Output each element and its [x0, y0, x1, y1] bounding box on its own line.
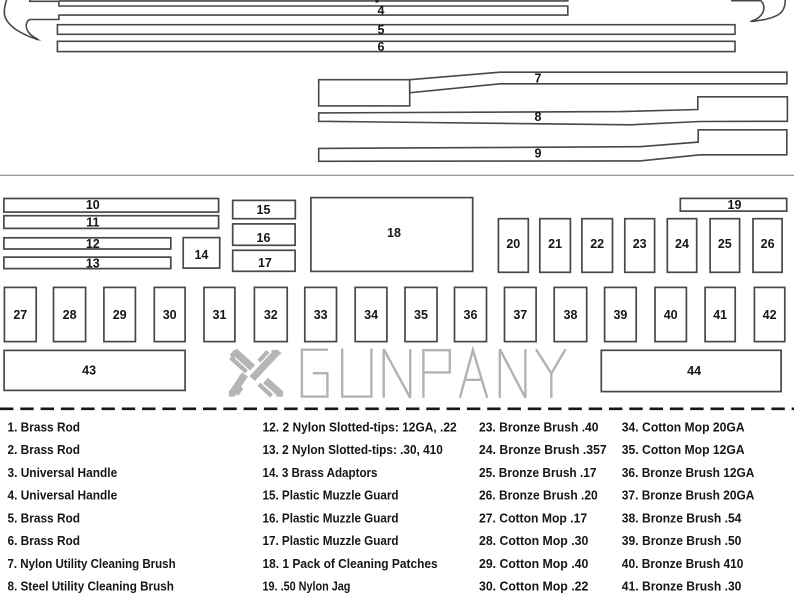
svg-text:44: 44 [687, 364, 701, 378]
svg-text:33: 33 [314, 308, 328, 322]
svg-text:40. Bronze Brush 410: 40. Bronze Brush 410 [622, 556, 744, 571]
svg-text:20: 20 [506, 237, 520, 251]
svg-text:28. Cotton Mop .30: 28. Cotton Mop .30 [479, 533, 588, 548]
svg-text:27: 27 [13, 308, 27, 322]
svg-text:5: 5 [378, 23, 385, 37]
svg-text:34. Cotton Mop 20GA: 34. Cotton Mop 20GA [622, 419, 745, 434]
svg-text:25. Bronze Brush .17: 25. Bronze Brush .17 [479, 465, 597, 480]
svg-text:3. Universal Handle: 3. Universal Handle [8, 465, 118, 480]
svg-text:24. Bronze Brush .357: 24. Bronze Brush .357 [479, 442, 607, 457]
svg-text:23. Bronze Brush .40: 23. Bronze Brush .40 [479, 419, 599, 434]
svg-text:13. 2 Nylon Slotted-tips: .30,: 13. 2 Nylon Slotted-tips: .30, 410 [263, 442, 443, 457]
svg-text:6. Brass Rod: 6. Brass Rod [8, 533, 81, 548]
svg-text:16: 16 [257, 231, 271, 245]
svg-text:29. Cotton Mop .40: 29. Cotton Mop .40 [479, 556, 588, 571]
svg-text:15: 15 [257, 203, 271, 217]
svg-text:19: 19 [728, 198, 742, 212]
svg-text:8: 8 [535, 110, 542, 124]
svg-text:21: 21 [548, 237, 562, 251]
svg-text:6: 6 [378, 40, 385, 54]
svg-text:42: 42 [763, 308, 777, 322]
svg-text:9: 9 [535, 147, 542, 161]
svg-text:26: 26 [761, 237, 775, 251]
svg-text:36. Bronze Brush 12GA: 36. Bronze Brush 12GA [622, 465, 755, 480]
svg-text:14: 14 [194, 248, 208, 262]
svg-text:12. 2 Nylon Slotted-tips: 12GA: 12. 2 Nylon Slotted-tips: 12GA, .22 [263, 419, 457, 434]
svg-text:41. Bronze Brush .30: 41. Bronze Brush .30 [622, 579, 742, 594]
svg-text:43: 43 [82, 364, 96, 378]
svg-text:10: 10 [86, 198, 100, 212]
svg-text:27. Cotton Mop .17: 27. Cotton Mop .17 [479, 511, 587, 526]
svg-text:7: 7 [535, 71, 542, 85]
svg-text:8. Steel Utility Cleaning Brus: 8. Steel Utility Cleaning Brush [8, 579, 175, 594]
svg-text:37. Bronze Brush 20GA: 37. Bronze Brush 20GA [622, 488, 755, 503]
svg-text:35: 35 [414, 308, 428, 322]
svg-text:26. Bronze Brush .20: 26. Bronze Brush .20 [479, 488, 598, 503]
svg-text:30: 30 [163, 308, 177, 322]
svg-text:39. Bronze Brush .50: 39. Bronze Brush .50 [622, 533, 742, 548]
svg-text:31: 31 [213, 308, 227, 322]
svg-text:41: 41 [713, 308, 727, 322]
svg-text:38. Bronze Brush .54: 38. Bronze Brush .54 [622, 511, 742, 526]
svg-text:4: 4 [378, 4, 385, 18]
svg-text:13: 13 [86, 256, 100, 270]
svg-text:19. .50 Nylon Jag: 19. .50 Nylon Jag [263, 579, 351, 594]
svg-text:12: 12 [86, 237, 100, 251]
svg-text:28: 28 [63, 308, 77, 322]
svg-text:39: 39 [613, 308, 627, 322]
svg-text:15. Plastic Muzzle Guard: 15. Plastic Muzzle Guard [263, 488, 399, 503]
svg-text:11: 11 [86, 216, 99, 230]
svg-text:16. Plastic Muzzle Guard: 16. Plastic Muzzle Guard [263, 511, 399, 526]
svg-text:36: 36 [464, 308, 478, 322]
svg-text:5. Brass Rod: 5. Brass Rod [8, 511, 81, 526]
svg-text:2. Brass Rod: 2. Brass Rod [8, 442, 81, 457]
svg-text:30. Cotton Mop .22: 30. Cotton Mop .22 [479, 579, 588, 594]
svg-text:25: 25 [718, 237, 732, 251]
svg-text:35. Cotton Mop 12GA: 35. Cotton Mop 12GA [622, 442, 745, 457]
svg-text:4. Universal Handle: 4. Universal Handle [8, 488, 118, 503]
svg-text:37: 37 [513, 308, 527, 322]
svg-text:17. Plastic Muzzle Guard: 17. Plastic Muzzle Guard [263, 533, 399, 548]
svg-text:18. 1 Pack of Cleaning Patches: 18. 1 Pack of Cleaning Patches [263, 556, 438, 571]
svg-text:34: 34 [364, 308, 378, 322]
svg-text:17: 17 [258, 256, 272, 270]
svg-text:14. 3 Brass Adaptors: 14. 3 Brass Adaptors [263, 465, 378, 480]
svg-text:29: 29 [113, 308, 127, 322]
svg-text:40: 40 [664, 308, 678, 322]
svg-text:23: 23 [633, 237, 647, 251]
svg-text:24: 24 [675, 237, 689, 251]
svg-text:1. Brass Rod: 1. Brass Rod [8, 419, 81, 434]
svg-text:38: 38 [564, 308, 578, 322]
svg-text:18: 18 [387, 226, 401, 240]
svg-text:22: 22 [590, 237, 604, 251]
svg-text:7. Nylon Utility Cleaning Brus: 7. Nylon Utility Cleaning Brush [8, 556, 176, 571]
svg-text:32: 32 [264, 308, 278, 322]
